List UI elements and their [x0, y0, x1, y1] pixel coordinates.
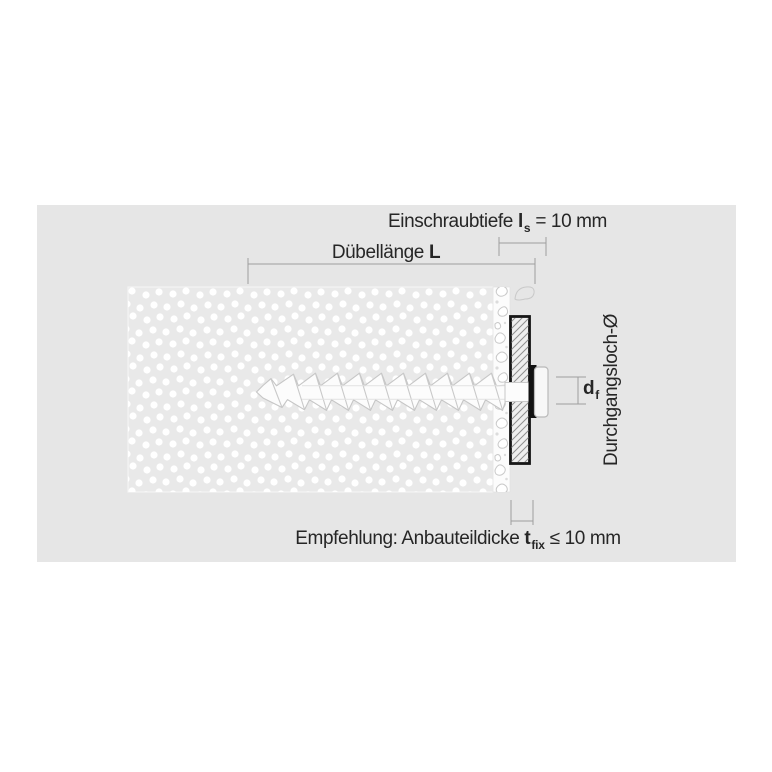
- empfehlung-value: ≤ 10 mm: [550, 528, 621, 549]
- label-durchgangsloch: Durchgangsloch-Ø: [601, 314, 623, 466]
- label-duebellaenge: DübellängeL: [332, 242, 440, 264]
- label-einschraubtiefe: Einschraubtiefels= 10 mm: [388, 211, 607, 234]
- df-subscript: f: [595, 388, 599, 402]
- einschraubtiefe-text: Einschraubtiefe: [388, 211, 513, 232]
- screw-head: [535, 367, 549, 417]
- duebellaenge-symbol: L: [429, 242, 440, 263]
- diagram-page: Einschraubtiefels= 10 mm DübellängeL Dur…: [0, 0, 772, 772]
- screw-shank: [505, 383, 530, 402]
- dowel-installation-diagram: [0, 0, 772, 772]
- durchgangsloch-text: Durchgangsloch-Ø: [601, 314, 622, 466]
- einschraubtiefe-subscript: s: [524, 221, 530, 235]
- empfehlung-symbol: t: [524, 528, 530, 549]
- duebellaenge-text: Dübellänge: [332, 242, 424, 263]
- einschraubtiefe-symbol: l: [518, 211, 523, 232]
- df-symbol: d: [583, 378, 594, 399]
- label-empfehlung: Empfehlung: Anbauteildicketfix≤ 10 mm: [295, 528, 620, 551]
- einschraubtiefe-value: = 10 mm: [535, 211, 607, 232]
- empfehlung-subscript: fix: [531, 538, 544, 552]
- empfehlung-text: Empfehlung: Anbauteildicke: [295, 528, 519, 549]
- label-df: df: [583, 378, 599, 401]
